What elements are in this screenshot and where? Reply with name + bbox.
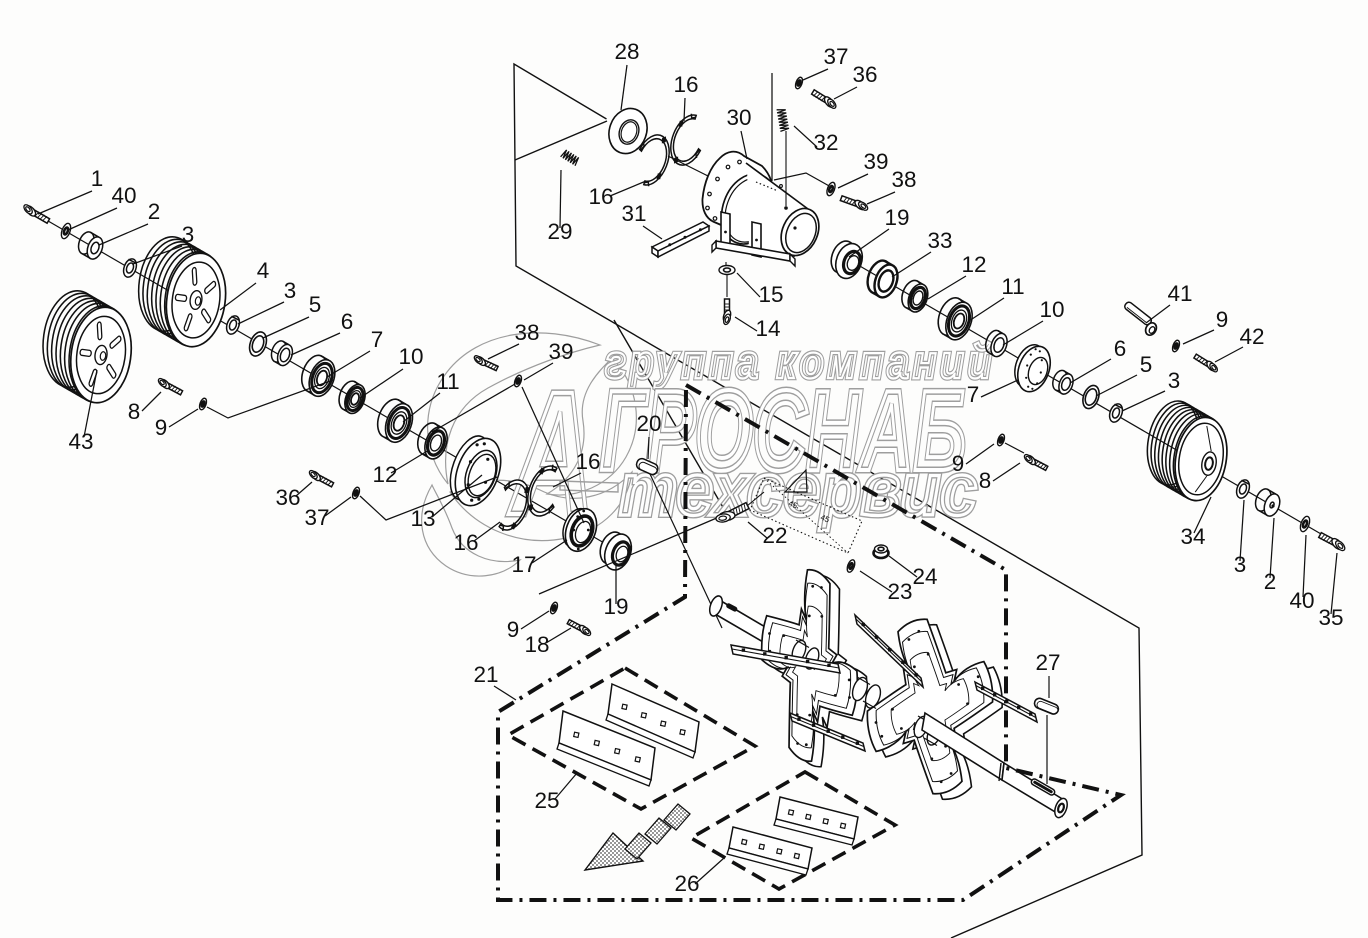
svg-text:27: 27 (1035, 650, 1060, 675)
svg-text:5: 5 (309, 292, 322, 317)
svg-text:30: 30 (726, 105, 751, 130)
svg-text:2: 2 (148, 199, 161, 224)
svg-text:19: 19 (884, 205, 909, 230)
svg-text:12: 12 (961, 252, 986, 277)
svg-text:4: 4 (257, 258, 270, 283)
svg-text:13: 13 (410, 506, 435, 531)
svg-text:43: 43 (68, 429, 93, 454)
svg-text:8: 8 (128, 399, 141, 424)
svg-text:25: 25 (534, 788, 559, 813)
svg-text:39: 39 (863, 149, 888, 174)
svg-text:22: 22 (762, 523, 787, 548)
svg-text:36: 36 (852, 62, 877, 87)
svg-text:3: 3 (1168, 368, 1181, 393)
svg-text:7: 7 (967, 382, 980, 407)
svg-text:14: 14 (755, 316, 780, 341)
svg-text:15: 15 (758, 282, 783, 307)
svg-text:16: 16 (588, 184, 613, 209)
svg-text:28: 28 (614, 39, 639, 64)
svg-text:2: 2 (1264, 569, 1277, 594)
svg-text:38: 38 (514, 320, 539, 345)
svg-text:11: 11 (1001, 274, 1024, 299)
svg-text:37: 37 (304, 505, 329, 530)
svg-text:38: 38 (891, 167, 916, 192)
svg-text:1: 1 (91, 166, 104, 191)
svg-text:9: 9 (1216, 307, 1229, 332)
svg-text:6: 6 (1114, 336, 1127, 361)
svg-text:26: 26 (674, 871, 699, 896)
svg-text:техсервис: техсервис (619, 448, 977, 531)
svg-text:7: 7 (371, 327, 384, 352)
svg-text:20: 20 (636, 411, 661, 436)
svg-text:40: 40 (1289, 588, 1314, 613)
svg-text:8: 8 (979, 468, 992, 493)
svg-text:16: 16 (453, 530, 478, 555)
svg-text:36: 36 (275, 485, 300, 510)
svg-text:10: 10 (1039, 297, 1064, 322)
svg-text:9: 9 (507, 617, 520, 642)
svg-text:41: 41 (1167, 281, 1192, 306)
svg-text:5: 5 (1140, 352, 1153, 377)
svg-text:32: 32 (813, 130, 838, 155)
svg-text:3: 3 (182, 222, 195, 247)
svg-text:19: 19 (603, 594, 628, 619)
svg-text:3: 3 (1234, 552, 1247, 577)
svg-text:35: 35 (1318, 605, 1343, 630)
svg-text:40: 40 (111, 183, 136, 208)
svg-text:16: 16 (673, 72, 698, 97)
svg-text:33: 33 (927, 228, 952, 253)
svg-text:9: 9 (952, 451, 965, 476)
svg-text:29: 29 (547, 219, 572, 244)
svg-text:3: 3 (284, 278, 297, 303)
svg-text:31: 31 (621, 201, 646, 226)
svg-text:24: 24 (912, 564, 937, 589)
svg-text:11: 11 (436, 369, 459, 394)
svg-text:9: 9 (155, 415, 168, 440)
svg-text:37: 37 (823, 44, 848, 69)
svg-text:17: 17 (511, 552, 536, 577)
svg-text:6: 6 (341, 309, 354, 334)
svg-text:21: 21 (473, 662, 498, 687)
svg-text:34: 34 (1180, 524, 1205, 549)
svg-text:42: 42 (1239, 324, 1264, 349)
svg-text:16: 16 (575, 449, 600, 474)
svg-text:23: 23 (887, 579, 912, 604)
svg-text:18: 18 (524, 632, 549, 657)
svg-text:12: 12 (372, 462, 397, 487)
svg-text:39: 39 (548, 339, 573, 364)
svg-text:10: 10 (398, 344, 423, 369)
